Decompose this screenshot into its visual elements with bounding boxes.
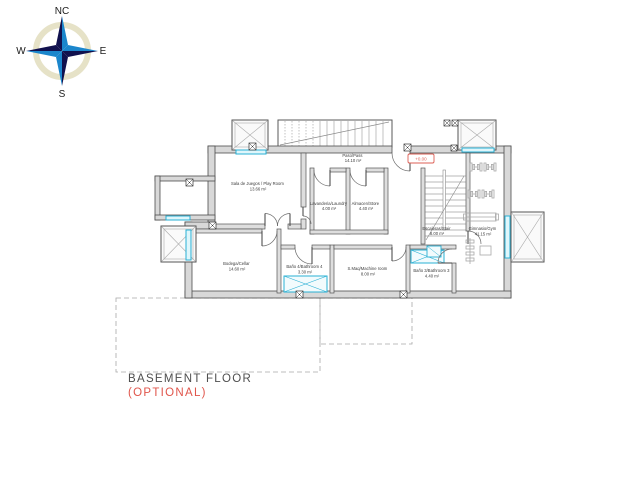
dashed-patio-outline xyxy=(116,298,412,372)
window-left xyxy=(186,230,191,260)
room-label-playroom: Sala de Juegos / Play Room 13.66 m² xyxy=(231,181,285,192)
plan-title: BASEMENT FLOOR (OPTIONAL) xyxy=(128,372,252,401)
compass-north-label: NC xyxy=(55,6,69,17)
door-machine-room xyxy=(392,247,406,261)
level-marker-value: +0.00 xyxy=(415,157,427,162)
window-bumpout xyxy=(166,216,190,220)
room-label-laundry: Lavanderia/Laundry 4.00 m² xyxy=(310,201,348,211)
window-top-left xyxy=(236,150,266,154)
lightwell-top-right xyxy=(458,120,496,150)
door-bathroom4 xyxy=(295,247,312,264)
window-right xyxy=(505,216,510,258)
door-cellar xyxy=(262,231,277,246)
room-label-bathroom4: Baño 4/Bathroom 4 3.30 m² xyxy=(286,264,323,275)
plan-title-line1: BASEMENT FLOOR xyxy=(128,372,252,386)
compass-south-label: S xyxy=(59,89,66,99)
dumbbells-row1 xyxy=(470,163,496,171)
room-labels: Sala de Juegos / Play Room 13.66 m² Paso… xyxy=(223,153,497,279)
shower-bathroom4 xyxy=(284,276,327,292)
door-entry xyxy=(392,153,410,171)
plan-title-line2: (OPTIONAL) xyxy=(128,386,252,400)
compass-rose-icon: NC E S W xyxy=(12,4,112,99)
door-laundry xyxy=(314,170,330,186)
dumbbells-row2 xyxy=(468,190,494,198)
exterior-stairs xyxy=(278,120,392,147)
page: +0.00 Sala de Juegos / Play Room 13.66 m… xyxy=(0,0,640,481)
room-label-paso: Paso/Pass 14.10 m² xyxy=(342,153,363,163)
room-label-machine: S.Maq/Machine room 8.00 m² xyxy=(348,266,389,277)
door-playroom-double xyxy=(265,214,290,227)
room-label-store: Almacen/Store 4.40 m² xyxy=(352,201,381,211)
room-label-stairs: Escaleras/Stair 8.00 m² xyxy=(422,226,451,236)
level-marker: +0.00 xyxy=(408,154,434,163)
room-label-gym: Gimnasio/Gym 41.15 m² xyxy=(469,226,498,237)
compass-east-label: E xyxy=(100,46,107,57)
door-store xyxy=(350,170,366,186)
barbell-rack xyxy=(466,238,491,264)
fixture-cyan-small xyxy=(427,246,441,257)
compass-west-label: W xyxy=(16,46,26,57)
window-top-right xyxy=(462,148,494,152)
room-label-cellar: Bodega/Cellar 14.60 m² xyxy=(223,261,251,272)
lightwell-right xyxy=(511,212,544,262)
room-label-bathroom3: Baño 3/Bathroom 3 4.40 m² xyxy=(413,268,450,279)
